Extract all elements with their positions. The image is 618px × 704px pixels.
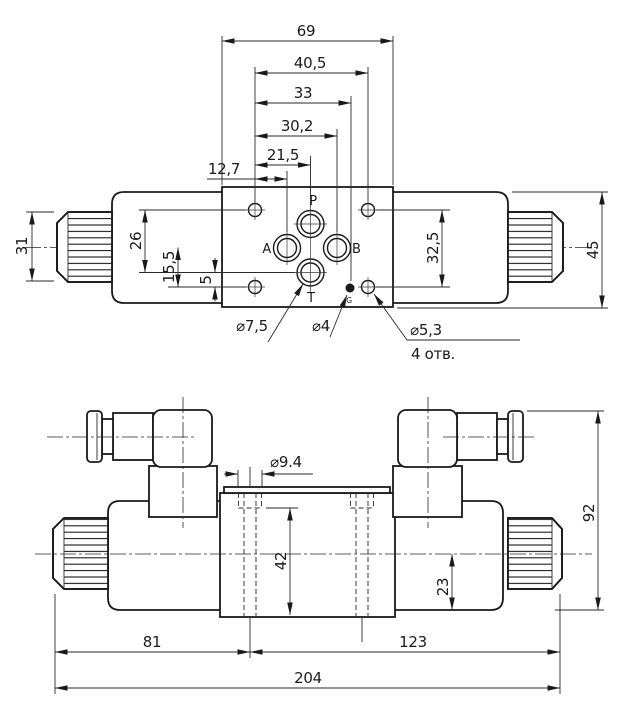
right-coil-flange xyxy=(393,466,462,517)
left-knob-front xyxy=(53,518,108,589)
dim-holes-to-t: 26 xyxy=(127,232,145,251)
name-plate xyxy=(224,487,390,493)
dim-port-b-x: 30,2 xyxy=(281,117,313,135)
dim-gauge-x: 33 xyxy=(294,84,313,102)
callout-mount-dia: ⌀5,3 xyxy=(410,321,442,339)
dim-holes-y-spacing: 32,5 xyxy=(424,232,442,264)
port-p-label: P xyxy=(309,194,317,209)
gauge-port-dot xyxy=(346,284,355,293)
dim-counterbore: ⌀9.4 xyxy=(270,453,302,471)
port-a-label: A xyxy=(262,242,271,257)
left-connector xyxy=(87,410,212,467)
dim-knob-height: 31 xyxy=(13,237,31,256)
dim-right-section: 123 xyxy=(399,633,427,651)
left-knob-top xyxy=(57,212,112,282)
valve-drawing-svg: G P A B T 69 40,5 33 30,2 21,5 12,7 31 2 xyxy=(0,0,618,704)
callout-gauge-dia: ⌀4 xyxy=(312,317,330,335)
callout-t-port-dia: ⌀7,5 xyxy=(236,317,268,335)
port-b-label: B xyxy=(352,242,361,257)
port-t-label: T xyxy=(306,291,315,306)
front-view: ⌀9.4 42 23 92 81 123 204 xyxy=(35,397,604,694)
callout-mount-qty: 4 отв. xyxy=(411,345,455,363)
dim-center-to-base: 23 xyxy=(434,578,452,597)
dim-t-to-holes: 5 xyxy=(197,275,215,284)
top-horizontal-dimensions: 69 40,5 33 30,2 21,5 12,7 xyxy=(207,22,393,179)
dim-solenoid-height: 45 xyxy=(584,241,602,260)
dim-port-pt-x: 21,5 xyxy=(267,146,299,164)
right-solenoid-top xyxy=(393,192,508,303)
right-knob-top xyxy=(508,212,563,282)
dim-total-width: 69 xyxy=(297,22,316,40)
dim-holes-x: 40,5 xyxy=(294,54,326,72)
right-knob-front xyxy=(508,518,562,589)
dim-bore-depth: 42 xyxy=(272,552,290,571)
dim-total-height: 92 xyxy=(580,504,598,523)
top-view: G P A B T 69 40,5 33 30,2 21,5 12,7 31 2 xyxy=(13,22,608,363)
technical-drawing-sheet: G P A B T 69 40,5 33 30,2 21,5 12,7 31 2 xyxy=(0,0,618,704)
dim-total-width-front: 204 xyxy=(294,669,322,687)
dim-ab-to-holes: 15,5 xyxy=(160,251,178,283)
gauge-port-label: G xyxy=(346,296,352,305)
right-connector xyxy=(398,410,523,467)
dim-left-section: 81 xyxy=(143,633,162,651)
valve-body-front xyxy=(220,493,395,617)
dim-port-a-x: 12,7 xyxy=(208,160,240,178)
